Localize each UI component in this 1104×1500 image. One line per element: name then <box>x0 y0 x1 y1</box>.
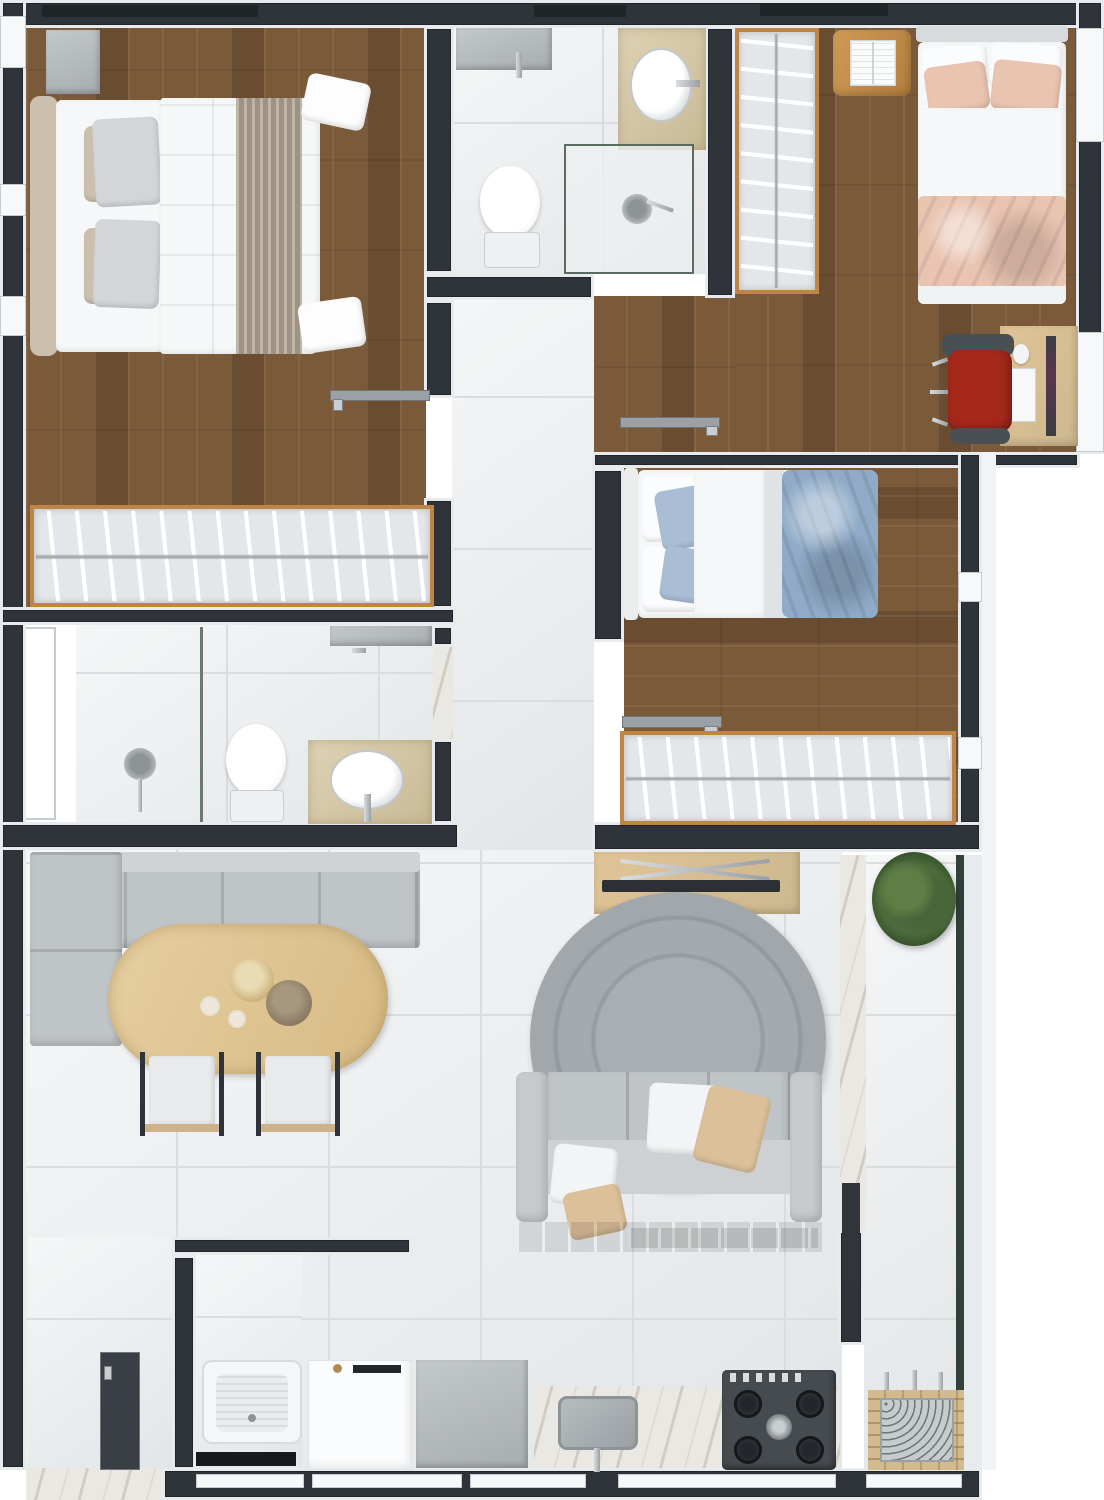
wall-master-right-mid <box>424 300 454 398</box>
dining-bench-sofa-vertical <box>30 852 122 1046</box>
master-wardrobe <box>30 505 434 607</box>
chair-caster <box>930 390 948 394</box>
dining-chair <box>256 1052 340 1136</box>
window <box>196 1474 304 1488</box>
balcony-door-frame <box>842 1183 860 1283</box>
bath1-shelf <box>456 28 552 70</box>
window <box>1076 28 1104 142</box>
burner <box>796 1390 824 1418</box>
wall-kitchen-niche-left <box>172 1255 196 1470</box>
wardrobe-hangers <box>36 511 428 601</box>
laundry-tub <box>202 1360 302 1444</box>
master-nightstand <box>46 30 100 94</box>
bbq-grill <box>880 1398 954 1462</box>
bedroom2-blanket-peach <box>918 196 1066 288</box>
bedroom3-wardrobe <box>620 731 956 825</box>
wall-bedroom3-top <box>592 452 1080 468</box>
wardrobe-hangers <box>741 34 813 288</box>
master-throw-pillow <box>297 296 367 354</box>
bath2-shower-stem <box>138 778 142 812</box>
kitchen-sink <box>558 1396 638 1450</box>
door-handle <box>104 1366 112 1380</box>
washer-control-strip <box>353 1365 401 1373</box>
outer-edge <box>982 452 996 1470</box>
floor-plan <box>0 0 1104 1500</box>
television <box>602 880 780 892</box>
wall-bedroom3-left <box>592 468 624 642</box>
balcony-glass-balustrade <box>956 855 964 1470</box>
window <box>0 16 26 68</box>
master-bed-runner <box>236 98 302 354</box>
window <box>618 1474 836 1488</box>
master-bed-headboard <box>30 96 58 356</box>
balcony-rail-trim <box>964 855 982 1470</box>
window <box>0 296 26 336</box>
bath1-sink-faucet <box>676 80 700 87</box>
washer-knob <box>333 1364 342 1373</box>
candle <box>200 996 220 1016</box>
dining-chair <box>140 1052 224 1136</box>
window-lintel <box>760 3 888 16</box>
window <box>1076 332 1104 452</box>
wall-living-top <box>592 822 982 852</box>
bedroom2-monitor <box>1046 336 1056 436</box>
laundry-window-slot <box>194 1450 298 1468</box>
laundry-tap <box>248 1414 256 1422</box>
kitchen-upper-shelf <box>628 1228 818 1248</box>
bedroom2-bed-headboard <box>916 26 1068 42</box>
serving-bowl-brown <box>266 980 312 1026</box>
bedroom2-door <box>620 417 720 428</box>
window <box>470 1474 586 1488</box>
burner <box>796 1436 824 1464</box>
window <box>0 184 26 216</box>
living-sofa-arm <box>790 1072 822 1222</box>
chair-front-rail <box>261 1124 335 1132</box>
burner <box>734 1390 762 1418</box>
bedroom2-open-book <box>850 40 896 86</box>
bath2-glass-partition <box>200 627 203 822</box>
bedroom2-office-chair <box>948 350 1012 432</box>
hallway-floor <box>452 274 594 852</box>
bath1-toilet-bowl <box>480 166 540 238</box>
bedroom2-bed-foot <box>918 286 1066 304</box>
wall-bath2-right-upper <box>432 625 454 647</box>
bathroom2-marble-threshold <box>433 647 453 739</box>
bedroom3-blanket-blue <box>782 470 878 618</box>
master-bedroom-door <box>330 390 430 401</box>
window-lintel <box>534 5 626 17</box>
bedroom3-duvet <box>694 470 766 618</box>
wall-bath2-right-lower <box>432 739 454 824</box>
bath2-shelf-hook <box>352 648 366 653</box>
bedroom3-sheet <box>764 470 784 618</box>
bath2-toilet-tank <box>230 790 284 822</box>
bedroom2-pillow-peach <box>990 59 1063 116</box>
wall-left <box>0 0 26 1470</box>
balcony-marble-strip <box>840 855 866 1230</box>
laundry-tub-basin <box>216 1374 288 1432</box>
bedroom2-duvet <box>918 108 1066 208</box>
window <box>312 1474 462 1488</box>
candle <box>228 1010 246 1028</box>
cooktop-knobs <box>730 1373 808 1382</box>
bath1-shelf-faucet <box>516 52 522 78</box>
kitchen-gray-unit <box>416 1360 528 1468</box>
wall-bath1-bottom <box>424 274 594 300</box>
chair-seat <box>149 1056 215 1126</box>
center-burner <box>766 1414 792 1440</box>
wardrobe-hangers <box>626 737 950 819</box>
entry-marble-threshold <box>26 1468 164 1500</box>
chair-seat <box>265 1056 331 1126</box>
window <box>958 572 982 602</box>
bath2-shelf <box>330 626 432 646</box>
bedroom2-chair-base <box>950 428 1010 444</box>
door-handle <box>706 426 718 436</box>
gas-cooktop <box>722 1370 836 1470</box>
chair-front-rail <box>145 1124 219 1132</box>
bedroom2-keyboard <box>1010 368 1036 422</box>
bbq-tool <box>938 1372 943 1390</box>
window <box>958 737 982 769</box>
living-sofa-arm <box>516 1072 548 1222</box>
master-pillow-gray <box>92 116 163 207</box>
bath2-toilet-bowl <box>226 724 286 796</box>
washing-machine <box>308 1360 412 1470</box>
window <box>866 1474 962 1488</box>
wall-kitchen-niche-top <box>172 1237 412 1255</box>
wall-bedroom3-right <box>958 452 982 825</box>
bedroom2-mouse <box>1013 344 1029 364</box>
bath2-sink-faucet <box>364 794 371 822</box>
kitchen-faucet <box>594 1448 600 1472</box>
window-lintel <box>42 5 258 17</box>
bedroom3-bed-headboard <box>624 468 638 620</box>
bbq-tool <box>912 1370 917 1390</box>
balcony-plant <box>872 852 956 946</box>
wall-bath2-bottom <box>0 822 460 850</box>
master-pillow-gray <box>92 219 161 309</box>
bbq-tool <box>884 1372 889 1390</box>
wall-bath1-right <box>705 26 735 298</box>
bath1-toilet-tank <box>484 232 540 268</box>
burner <box>734 1436 762 1464</box>
door-handle <box>333 399 343 411</box>
wall-master-right-upper <box>424 26 454 274</box>
bedroom2-wardrobe <box>735 28 819 294</box>
wall-master-bottom <box>0 607 456 625</box>
bath2-shower-drain <box>124 748 156 780</box>
